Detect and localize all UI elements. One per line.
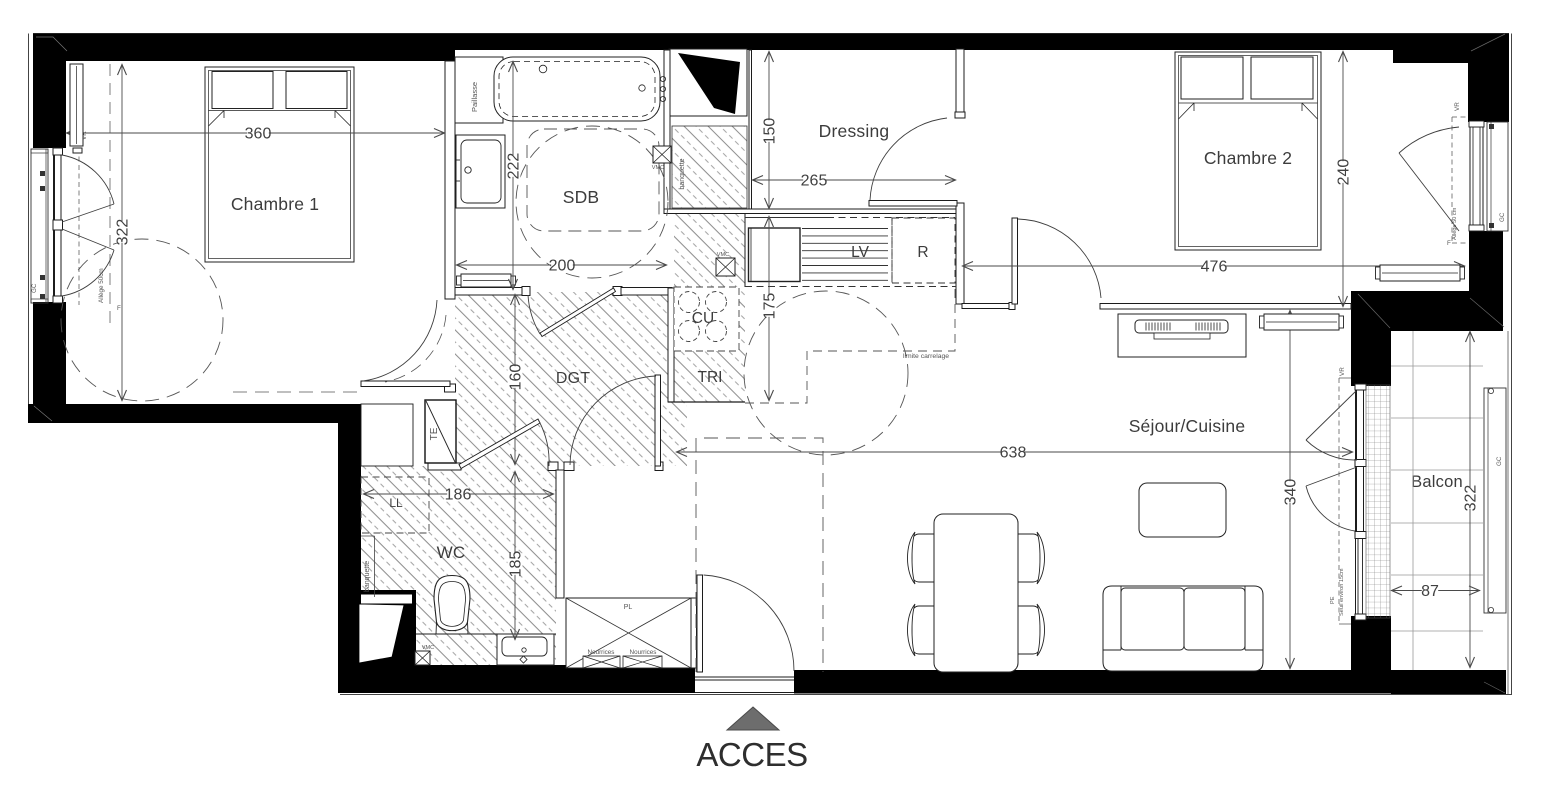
- svg-text:186: 186: [445, 487, 472, 504]
- svg-text:200: 200: [549, 258, 576, 275]
- svg-text:Paillasse: Paillasse: [470, 82, 479, 112]
- svg-text:ACCES: ACCES: [696, 736, 807, 773]
- svg-text:DGT: DGT: [556, 370, 590, 387]
- svg-text:banquette: banquette: [364, 561, 371, 592]
- svg-text:Chambre 1: Chambre 1: [231, 194, 319, 214]
- svg-text:LV: LV: [851, 244, 869, 261]
- svg-text:GC: GC: [31, 283, 38, 293]
- svg-text:SDB: SDB: [563, 187, 600, 207]
- svg-text:Nourrices: Nourrices: [588, 649, 615, 656]
- svg-text:240: 240: [1336, 159, 1353, 186]
- svg-text:LL: LL: [389, 496, 403, 510]
- svg-text:322: 322: [1463, 485, 1480, 512]
- svg-text:Séjour/Cuisine: Séjour/Cuisine: [1129, 416, 1246, 436]
- svg-text:265: 265: [801, 173, 828, 190]
- svg-text:CU: CU: [692, 310, 714, 327]
- svg-text:150: 150: [762, 118, 779, 145]
- svg-text:175: 175: [762, 293, 779, 320]
- svg-text:340: 340: [1283, 479, 1300, 506]
- svg-text:185: 185: [508, 551, 525, 578]
- svg-text:limite carrelage: limite carrelage: [903, 353, 949, 360]
- svg-text:Balcon: Balcon: [1411, 473, 1463, 491]
- svg-text:TRI: TRI: [698, 369, 723, 386]
- svg-text:476: 476: [1201, 259, 1228, 276]
- svg-text:360: 360: [245, 126, 272, 143]
- svg-text:VMC: VMC: [422, 645, 434, 651]
- svg-text:GC: GC: [1496, 456, 1503, 466]
- svg-text:TE: TE: [429, 427, 440, 440]
- svg-text:Seuil environ 15cm: Seuil environ 15cm: [1339, 568, 1345, 616]
- svg-text:F: F: [1447, 240, 1451, 247]
- svg-text:VMC: VMC: [717, 252, 729, 258]
- svg-text:Nourrices: Nourrices: [630, 649, 657, 656]
- svg-text:VR: VR: [1339, 367, 1346, 376]
- svg-text:banquette: banquette: [679, 158, 686, 189]
- svg-text:WC: WC: [437, 543, 466, 562]
- svg-text:222: 222: [506, 153, 523, 180]
- svg-text:638: 638: [1000, 445, 1027, 462]
- svg-text:Dressing: Dressing: [819, 121, 890, 141]
- svg-text:PE: PE: [1330, 596, 1336, 604]
- svg-text:F: F: [117, 305, 121, 312]
- svg-text:PL: PL: [624, 604, 633, 611]
- svg-text:VR: VR: [1454, 102, 1461, 111]
- svg-text:R: R: [917, 244, 928, 261]
- svg-text:322: 322: [115, 219, 132, 246]
- svg-text:GC: GC: [1499, 212, 1506, 222]
- svg-text:Chambre 2: Chambre 2: [1204, 148, 1292, 168]
- svg-text:VMC: VMC: [652, 165, 664, 171]
- svg-text:160: 160: [508, 364, 525, 391]
- svg-text:87: 87: [1421, 583, 1439, 600]
